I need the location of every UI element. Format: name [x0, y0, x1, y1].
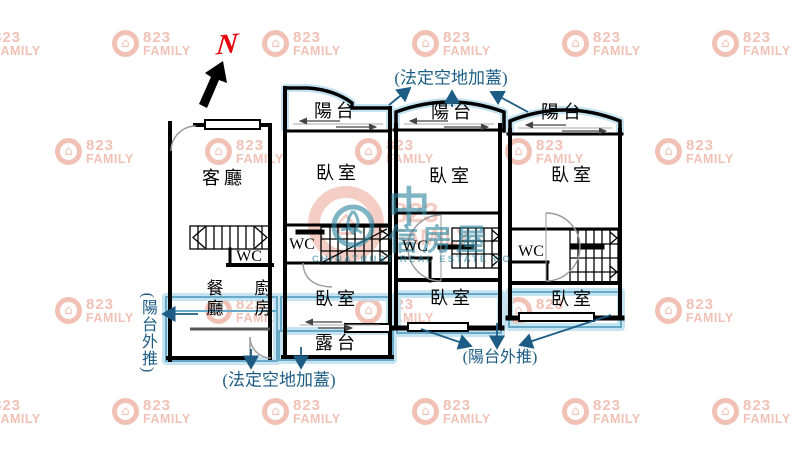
stairs [190, 226, 618, 284]
north-arrow-icon [199, 61, 227, 108]
floorplan-drawing [0, 0, 800, 450]
floorplan-image: ⌂823FAMILY⌂823FAMILY⌂823FAMILY⌂823FAMILY… [0, 0, 800, 450]
